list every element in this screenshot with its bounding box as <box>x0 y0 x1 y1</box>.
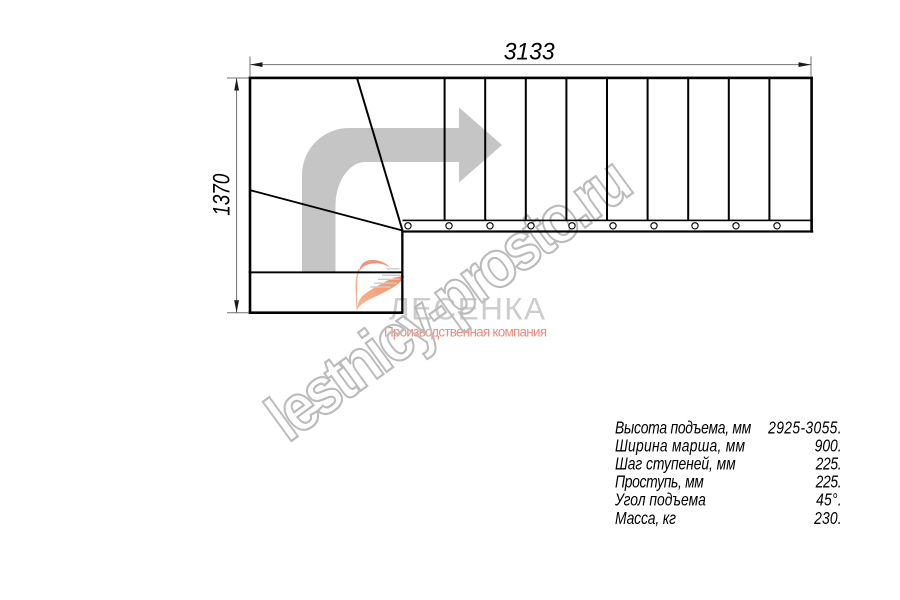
svg-text:230.: 230. <box>813 509 841 528</box>
svg-text:Ширина марша, мм: Ширина марша, мм <box>615 437 745 456</box>
svg-text:900.: 900. <box>815 437 842 456</box>
svg-text:2925-3055.: 2925-3055. <box>767 419 841 438</box>
svg-text:225.: 225. <box>815 473 842 492</box>
svg-text:Проступь, мм: Проступь, мм <box>615 473 704 492</box>
svg-text:Масса, кг: Масса, кг <box>615 509 676 528</box>
svg-text:1370: 1370 <box>209 173 236 215</box>
svg-text:Высота подъема, мм: Высота подъема, мм <box>615 419 751 438</box>
svg-text:45°.: 45°. <box>816 491 842 510</box>
svg-text:3133: 3133 <box>504 38 555 65</box>
svg-text:Шаг ступеней, мм: Шаг ступеней, мм <box>615 455 736 474</box>
svg-text:225.: 225. <box>815 455 842 474</box>
svg-text:Угол подъема: Угол подъема <box>614 491 706 510</box>
